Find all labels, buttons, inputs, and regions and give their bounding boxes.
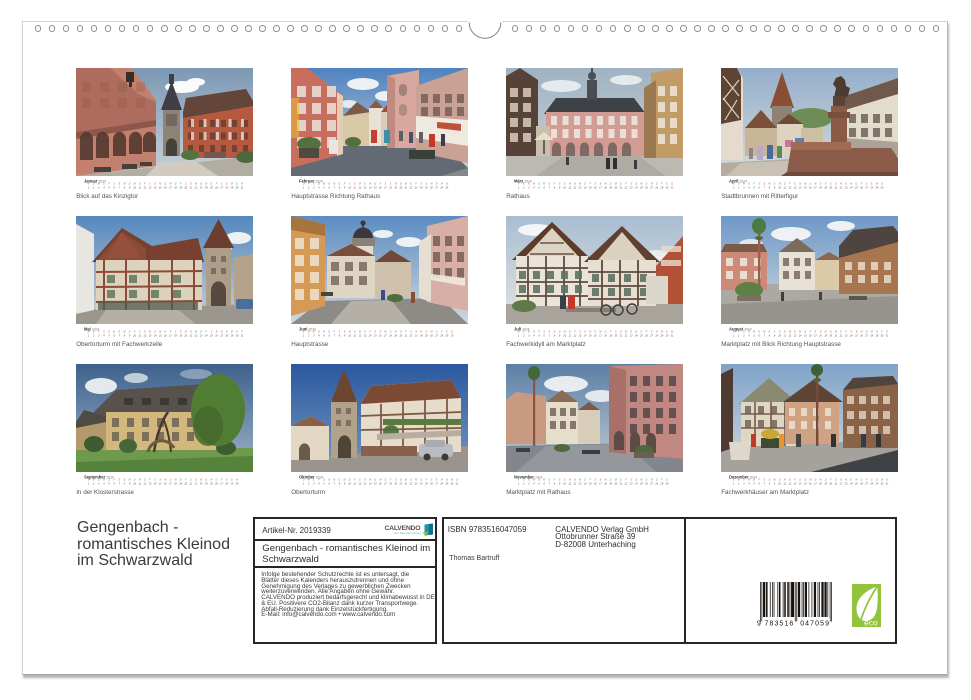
svg-text:eco: eco — [864, 617, 878, 627]
svg-text:047059: 047059 — [800, 620, 829, 627]
svg-text:9: 9 — [757, 620, 761, 627]
svg-text:der Kalenderverlag: der Kalenderverlag — [395, 531, 422, 535]
svg-text:783516: 783516 — [764, 620, 793, 627]
svg-text:CALVENDO: CALVENDO — [385, 524, 421, 531]
